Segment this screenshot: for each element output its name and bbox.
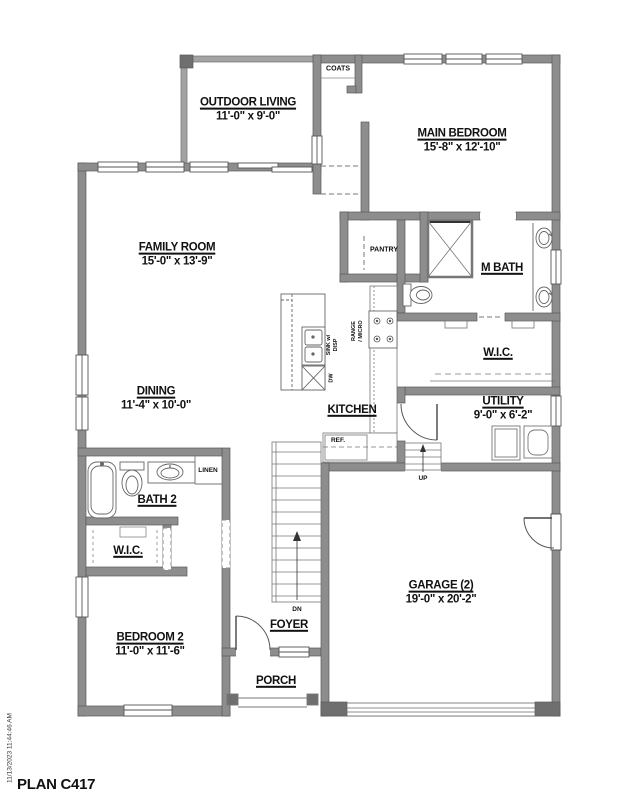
room-label-bedroom2: BEDROOM 2 11'-0" x 11'-6" (115, 631, 184, 660)
room-label-main-bedroom: MAIN BEDROOM 15'-8" x 12'-10" (417, 127, 506, 156)
room-label-outdoor-living: OUTDOOR LIVING 11'-0" x 9'-0" (200, 96, 296, 125)
label-sink-disp: SINK w/DISP (326, 335, 340, 355)
label-coats: COATS (326, 66, 350, 75)
utility-door (401, 404, 437, 440)
room-label-wic-main: W.I.C. (483, 346, 513, 360)
room-label-wic2: W.I.C. (113, 544, 143, 558)
window (76, 355, 88, 395)
room-label-m-bath: M BATH (481, 261, 523, 275)
island-sink-fixture (302, 327, 325, 365)
label-linen: LINEN (198, 467, 218, 475)
room-label-kitchen: KITCHEN (327, 403, 376, 417)
kitchen-island (281, 294, 325, 390)
plan-title: PLAN C417 (17, 776, 95, 793)
window (190, 162, 228, 172)
window (446, 54, 482, 64)
window (404, 54, 442, 64)
room-label-porch: PORCH (256, 674, 296, 688)
label-range-micro: RANGE/ MICRO (351, 320, 365, 341)
label-ref: REF. (331, 437, 345, 445)
window (551, 250, 561, 284)
stairs-garage-entry (405, 443, 441, 472)
wic2-door (163, 528, 171, 570)
room-label-family-room: FAMILY ROOM 15'-0" x 13'-9" (139, 241, 216, 270)
window (279, 647, 309, 657)
range-fixture (369, 311, 397, 348)
sink-fixture (148, 462, 195, 483)
room-label-bath2: BATH 2 (138, 493, 177, 507)
front-door (236, 616, 270, 657)
window (124, 705, 172, 716)
toilet-fixture (403, 284, 432, 306)
label-up: UP (418, 475, 427, 483)
shower-fixture (428, 221, 472, 277)
window (98, 162, 138, 172)
washer-fixture (492, 426, 520, 460)
room-label-foyer: FOYER (270, 618, 308, 632)
cased-opening (222, 520, 230, 568)
window (76, 577, 88, 617)
room-label-utility: UTILITY 9'-0" x 6'-2" (474, 395, 533, 424)
label-dn: DN (292, 606, 301, 614)
window (486, 54, 522, 64)
room-label-dining: DINING 11'-4" x 10'-0" (121, 385, 191, 414)
dishwasher (302, 366, 325, 390)
window (312, 136, 322, 164)
toilet-fixture (120, 462, 144, 496)
window (146, 162, 184, 172)
stairs-main (272, 442, 321, 602)
porch-details (227, 694, 318, 707)
utility-sink-fixture (524, 426, 552, 458)
room-label-garage: GARAGE (2) 19'-0" x 20'-2" (406, 579, 477, 608)
garage-door (347, 703, 535, 716)
window (551, 396, 561, 426)
garage-side-door (524, 514, 561, 550)
floor-plan: OUTDOOR LIVING 11'-0" x 9'-0" MAIN BEDRO… (0, 0, 640, 800)
vanity-sinks (533, 223, 552, 311)
label-dw: DW (329, 373, 336, 382)
floor-plan-linework (0, 0, 640, 800)
window (76, 397, 88, 430)
tub-fixture (88, 462, 116, 518)
label-pantry: PANTRY (370, 247, 398, 256)
patio-column (180, 55, 193, 68)
print-timestamp: 11/13/2023 11:44:46 AM (7, 713, 14, 783)
